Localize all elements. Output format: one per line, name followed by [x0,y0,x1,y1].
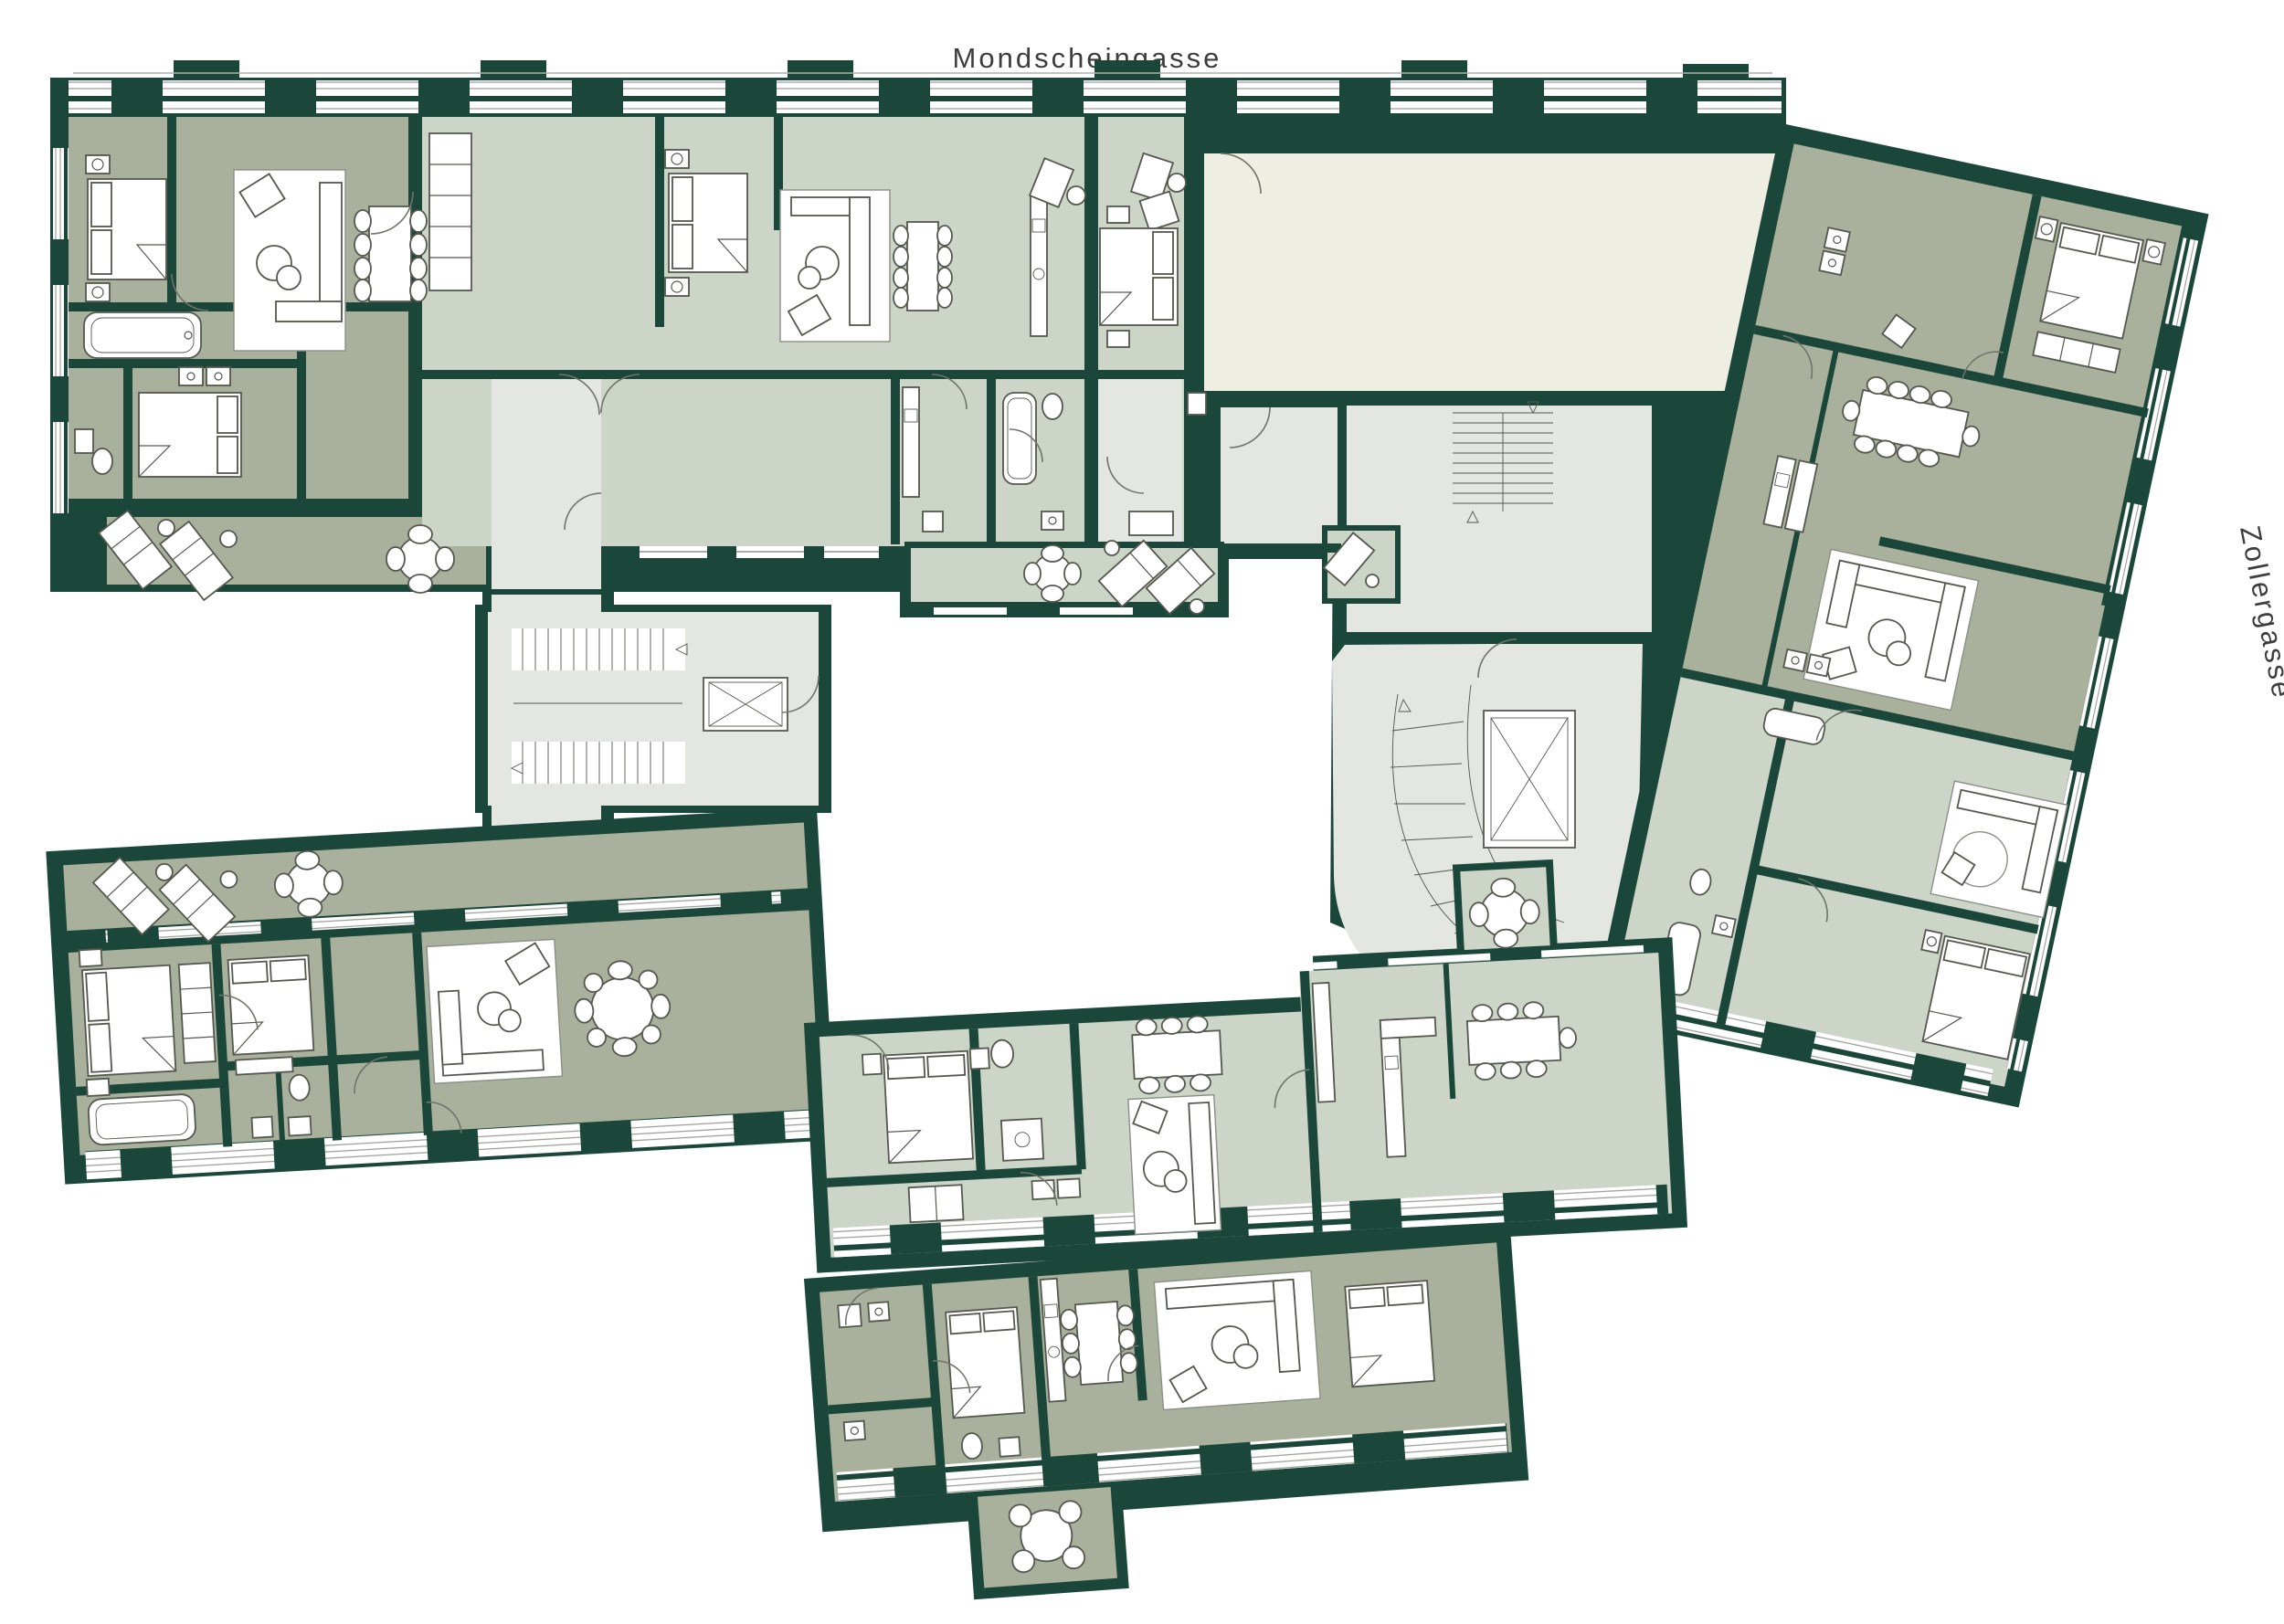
toilet [289,1074,311,1101]
shower [1001,1119,1043,1161]
toilet [990,1039,1014,1068]
bathtub [88,1093,196,1145]
washbasin [868,1302,889,1322]
living-room-furniture [1930,781,2067,917]
dining-table [894,222,952,311]
floor-plan-page: Mondscheingasse Zollergasse [0,0,2284,1624]
kitchen-counter [1031,195,1047,336]
bed [139,393,241,477]
vestibule-floor [1221,407,1338,546]
facade-windows-left [53,133,69,526]
living-room-furniture [1128,1095,1221,1235]
facade-windows-top [69,80,1782,113]
closet [429,133,471,290]
street-label-right: Zollergasse [2234,523,2284,702]
bottom-left-wing [46,807,836,1185]
living-room-furniture [427,939,562,1083]
closet [179,963,216,1063]
washer [251,1117,272,1138]
living-room-furniture [780,190,890,342]
elevator [703,678,788,731]
street-label-top: Mondscheingasse [953,42,1222,74]
dining-table [1060,1301,1138,1387]
washbasin [289,1116,312,1135]
dining-table [354,206,427,301]
bathtub [84,312,201,358]
bottom-center-wing [798,853,1687,1272]
elevator [1484,711,1575,848]
washbasin [999,1437,1020,1457]
living-room-furniture [234,170,345,351]
roof-courtyard [1204,153,1778,391]
floor-plan-canvas: Mondscheingasse Zollergasse [0,0,2284,1624]
bed [1100,206,1178,347]
bottom-wing [804,1227,1535,1610]
